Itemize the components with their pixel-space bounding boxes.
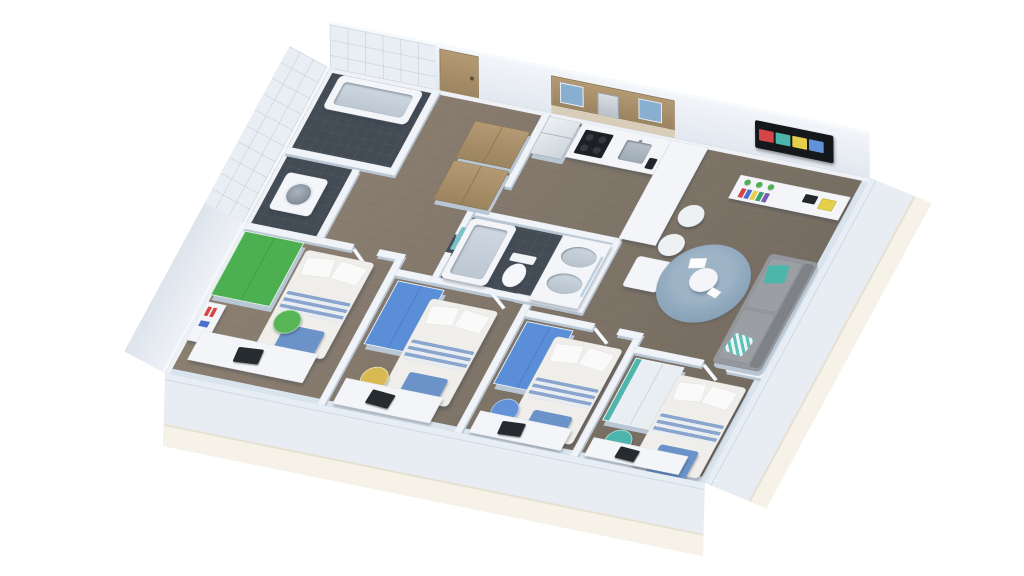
wardrobe-door-split bbox=[240, 238, 275, 301]
fridge-door-split bbox=[541, 132, 572, 139]
yellow-box bbox=[817, 198, 837, 211]
glass-cabinet-door bbox=[560, 82, 584, 107]
tv-app-tile bbox=[759, 129, 774, 143]
book bbox=[198, 320, 210, 327]
plant-icon bbox=[767, 184, 776, 190]
window-panel bbox=[714, 480, 717, 483]
stove bbox=[573, 130, 613, 159]
tv-app-tile bbox=[776, 132, 791, 146]
pillow bbox=[330, 261, 368, 286]
burner-icon bbox=[597, 136, 608, 144]
tablet bbox=[802, 194, 819, 205]
plant-icon bbox=[755, 181, 764, 187]
laptop bbox=[614, 446, 640, 462]
striped-blanket bbox=[527, 377, 600, 409]
laptop bbox=[365, 389, 396, 409]
bathtub-basin bbox=[332, 82, 413, 119]
closet-door-split bbox=[483, 127, 503, 163]
faucet-icon bbox=[638, 140, 643, 144]
striped-blanket bbox=[651, 413, 724, 444]
papers bbox=[688, 258, 707, 268]
tv-app-tile bbox=[809, 139, 824, 153]
tv-screen bbox=[759, 125, 830, 159]
burner-icon bbox=[584, 133, 595, 141]
window-panel bbox=[170, 381, 172, 383]
burner-icon bbox=[591, 146, 602, 154]
laptop bbox=[497, 421, 526, 437]
pillow bbox=[578, 347, 615, 372]
floorplan-render bbox=[0, 0, 1024, 576]
tv-app-tile bbox=[792, 136, 807, 150]
glass-cabinet-door bbox=[638, 98, 662, 123]
closet-door-split bbox=[460, 166, 482, 205]
pillow bbox=[453, 309, 490, 334]
plant-icon bbox=[743, 179, 752, 185]
laptop bbox=[233, 347, 265, 365]
door-handle-icon bbox=[470, 76, 474, 81]
pillow bbox=[701, 386, 738, 411]
washer-drum bbox=[279, 180, 318, 209]
striped-blanket bbox=[402, 339, 475, 371]
burner-icon bbox=[579, 144, 590, 152]
